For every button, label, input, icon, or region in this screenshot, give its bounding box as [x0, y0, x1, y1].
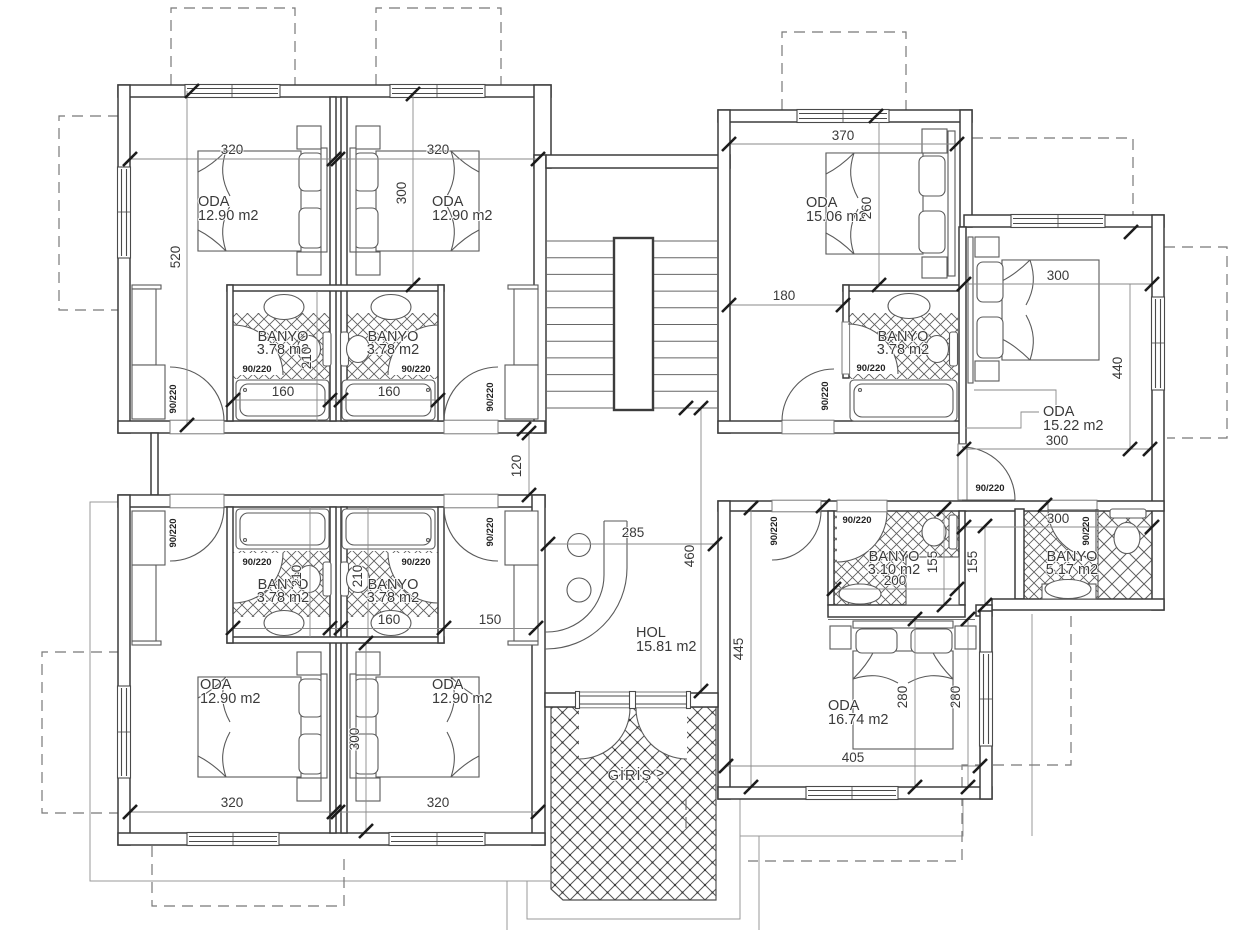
svg-text:3.78 m2: 3.78 m2	[877, 342, 929, 358]
svg-text:15.06 m2: 15.06 m2	[806, 209, 866, 225]
svg-text:520: 520	[168, 246, 183, 269]
svg-text:280: 280	[948, 686, 963, 709]
svg-text:300: 300	[394, 182, 409, 205]
svg-text:90/220: 90/220	[842, 515, 871, 526]
svg-text:260: 260	[859, 197, 874, 220]
svg-text:GİRİŞ: GİRİŞ	[608, 766, 652, 784]
svg-text:90/220: 90/220	[820, 381, 831, 410]
svg-text:120: 120	[509, 455, 524, 478]
svg-text:320: 320	[221, 795, 244, 810]
svg-text:90/220: 90/220	[401, 557, 430, 568]
svg-text:445: 445	[731, 638, 746, 661]
svg-text:160: 160	[272, 384, 295, 399]
svg-text:300: 300	[347, 728, 362, 751]
svg-text:180: 180	[773, 288, 796, 303]
svg-text:210: 210	[289, 565, 304, 588]
svg-text:210: 210	[350, 565, 365, 588]
svg-text:150: 150	[479, 612, 502, 627]
svg-text:12.90 m2: 12.90 m2	[200, 691, 260, 707]
svg-text:210: 210	[299, 347, 314, 370]
svg-text:300: 300	[1046, 433, 1069, 448]
svg-text:405: 405	[842, 750, 865, 765]
svg-text:>: >	[656, 766, 664, 782]
svg-text:300: 300	[1047, 511, 1070, 526]
svg-text:90/220: 90/220	[242, 557, 271, 568]
svg-text:155: 155	[965, 551, 980, 574]
svg-text:90/220: 90/220	[168, 518, 179, 547]
svg-text:12.90 m2: 12.90 m2	[432, 691, 492, 707]
svg-text:12.90 m2: 12.90 m2	[198, 208, 258, 224]
svg-text:90/220: 90/220	[1081, 516, 1092, 545]
svg-text:5.17 m2: 5.17 m2	[1046, 562, 1098, 578]
svg-text:370: 370	[832, 128, 855, 143]
svg-text:280: 280	[895, 686, 910, 709]
svg-text:155: 155	[925, 551, 940, 574]
svg-text:160: 160	[378, 384, 401, 399]
svg-text:160: 160	[378, 612, 401, 627]
svg-text:285: 285	[622, 525, 645, 540]
svg-text:3.78 m2: 3.78 m2	[367, 342, 419, 358]
svg-text:3.78 m2: 3.78 m2	[257, 590, 309, 606]
svg-text:90/220: 90/220	[769, 516, 780, 545]
svg-text:200: 200	[884, 573, 907, 588]
svg-text:12.90 m2: 12.90 m2	[432, 208, 492, 224]
svg-text:320: 320	[427, 142, 450, 157]
svg-text:90/220: 90/220	[401, 364, 430, 375]
svg-text:440: 440	[1110, 357, 1125, 380]
svg-text:90/220: 90/220	[168, 384, 179, 413]
svg-text:90/220: 90/220	[975, 483, 1004, 494]
svg-text:90/220: 90/220	[856, 363, 885, 374]
svg-text:16.74 m2: 16.74 m2	[828, 712, 888, 728]
svg-text:320: 320	[221, 142, 244, 157]
svg-text:90/220: 90/220	[485, 517, 496, 546]
svg-text:90/220: 90/220	[242, 364, 271, 375]
svg-text:90/220: 90/220	[485, 382, 496, 411]
svg-text:15.22 m2: 15.22 m2	[1043, 418, 1103, 434]
svg-text:460: 460	[682, 545, 697, 568]
svg-text:3.78 m2: 3.78 m2	[367, 590, 419, 606]
svg-text:300: 300	[1047, 268, 1070, 283]
svg-text:320: 320	[427, 795, 450, 810]
svg-text:15.81 m2: 15.81 m2	[636, 639, 696, 655]
